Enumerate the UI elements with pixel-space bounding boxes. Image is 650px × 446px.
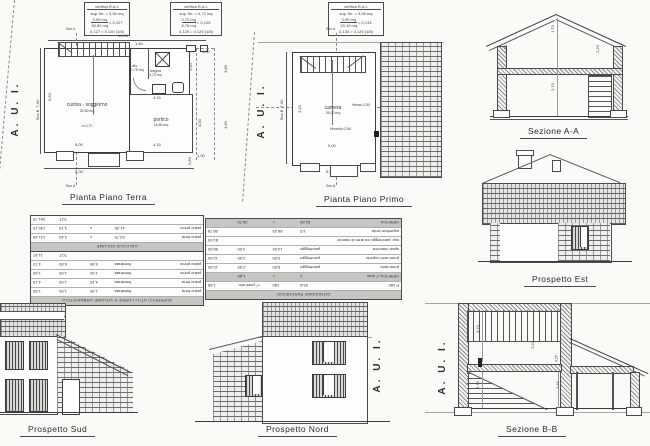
dim-ridge-aa: 1,70 <box>551 17 555 41</box>
title-prospetto-nord: Prospetto Nord <box>258 424 337 437</box>
table-cell: parcheggio <box>298 266 337 271</box>
dim-bagno: 2,50 <box>189 55 193 79</box>
rafter-zone <box>467 310 560 342</box>
wall-marker <box>374 131 379 137</box>
porch-step <box>56 151 74 161</box>
verifica-title: verifica R.A.I. <box>173 4 219 10</box>
verifica-sup: sup. fin. = 0,72 mq <box>173 11 219 16</box>
shower-symbol <box>155 52 170 67</box>
wall-footing <box>454 407 472 416</box>
portico-end-wall <box>630 372 640 412</box>
table-cell: 4,72 <box>31 263 57 268</box>
sez-a-marker-top: Sez.A <box>66 28 75 32</box>
porch-step <box>330 165 358 177</box>
dim-line <box>482 372 483 408</box>
verifica-check: 0,134 > 0,125 (1/8) <box>331 29 381 34</box>
window-pane <box>323 375 335 395</box>
aui-label-nord: A. U. I. <box>373 337 383 393</box>
table-cell: parcheggio <box>298 248 337 253</box>
dim-right-aa: 2,20 <box>596 37 600 61</box>
table-cell: 11,87 <box>31 254 57 259</box>
fraction-denominator: 29,10 mq <box>340 23 357 28</box>
camera-hmedia: Hmedia=2,56 <box>330 128 351 132</box>
drawing-sheet: verifica R.A.I. sup. fin. = 3,90 mq 3,90… <box>0 0 650 446</box>
room-label-cucina: cucina - soggiorno <box>44 103 130 108</box>
wall-footing <box>556 407 574 416</box>
roof-slope-left <box>486 14 556 47</box>
title-prospetto-sud: Prospetto Sud <box>20 424 95 437</box>
table-cell: 4,00 <box>236 248 271 253</box>
table-cell: VERIFICA <box>337 221 401 226</box>
table-row: piano primo41,30x3,15130,10 <box>31 225 203 234</box>
adjacent-building-hatch <box>380 42 442 178</box>
dim-corner-a: 1,00 <box>197 154 205 158</box>
dim-right-up: 3,80 <box>224 57 228 81</box>
table-row: VERIFICA n° auto2>1,88 <box>206 273 401 282</box>
table-row: VERIFICA81,00>28,76 <box>206 219 401 228</box>
title-sezione-bb: Sezione B-B <box>498 424 566 437</box>
dim-top-terra: 10,05 <box>118 34 128 38</box>
dim-line <box>286 52 287 164</box>
table-cell: 5,00 <box>271 257 299 262</box>
dim-line-center <box>557 18 558 116</box>
table-cell: 86,33 <box>271 230 299 235</box>
porch-step <box>88 153 120 167</box>
wall-footing <box>493 110 510 118</box>
table-cell: 2,50 <box>236 266 271 271</box>
roof-shingle-band <box>262 302 368 338</box>
sez-a-marker-bottom: Sez.A <box>326 185 335 189</box>
roof-fascia <box>0 311 64 320</box>
title-pianta-terra: Pianta Piano Terra <box>62 192 155 205</box>
wall-cucina <box>44 48 130 153</box>
table-cell: P 180 <box>337 284 401 289</box>
table-cell: VERIFICA n° auto <box>337 275 401 280</box>
table-cell: TOT <box>57 218 88 223</box>
table-cell: 2,45 <box>57 236 88 241</box>
verifica-check: 0,125 = 0,125 (1/8) <box>173 29 219 34</box>
table-cell: 41,30 <box>113 227 147 232</box>
chimney-cap <box>516 150 534 156</box>
aui-label-bb: A. U. I. <box>438 339 448 395</box>
table-cell: 1,00 <box>57 281 88 286</box>
window-shuttered <box>5 379 24 412</box>
table-cell: 28,76 <box>236 221 271 226</box>
table-cell: 81,00 <box>298 221 337 226</box>
dim-portico-top: 4,15 <box>153 96 161 100</box>
room-height-cucina: h=2,70 <box>44 125 130 129</box>
aui-label-primo: A. U. I. <box>257 83 267 139</box>
verifica-title: verifica R.A.I. <box>87 4 127 10</box>
dim-slab-bb: 0,25 <box>555 350 559 368</box>
roof-shingle-band <box>482 183 626 225</box>
table-cell: 1/3 <box>298 230 337 235</box>
table-cell: finestrata <box>113 281 147 286</box>
portico-post <box>612 372 614 410</box>
table-cell: sup. parcheggio ed aree di manovra <box>337 239 401 244</box>
table-cell: 1,50 <box>31 290 57 295</box>
table-cell: 12,50 <box>206 257 236 262</box>
dim-bottom-portico: 4,15 <box>153 143 161 147</box>
table-cell: 2,50 <box>236 257 271 262</box>
sez-b-marker: Sez.B <box>279 110 284 121</box>
table-cell: 2 <box>298 275 337 280</box>
sink-symbol <box>152 84 166 94</box>
table-cell: 3,15 <box>57 227 88 232</box>
table-banner: DOTAZIONE PARCHEGGI <box>206 291 401 299</box>
dim-corner-b: 0,80 <box>188 151 192 171</box>
section-wall-right <box>560 303 572 415</box>
table-superfici-volume: SUPERFICI UTILI LORDE E VOLUME URBANISTI… <box>30 215 204 306</box>
table-cell: superficie lorda <box>337 230 401 235</box>
dim-bottom-main: 5,00 <box>75 143 83 147</box>
table-cell: 28,78 <box>206 230 236 235</box>
table-cell: 0,80 <box>57 263 88 268</box>
fraction-denominator: 30,50 mq <box>91 23 108 28</box>
table-row: piano primofinestrata5,900,804,72 <box>31 261 203 270</box>
title-prospetto-est: Prospetto Est <box>524 274 596 287</box>
dim-low-bb: 2,70 <box>476 373 480 397</box>
table-cell: posto auto coperto <box>337 257 401 262</box>
dim-line-bottom <box>44 168 194 169</box>
sez-a-marker-top: Sez.A <box>326 28 335 32</box>
table-cell: 130,10 <box>31 227 57 232</box>
table-cell: 180 <box>271 284 299 289</box>
table-row: piano primofinestrata1,001,501,50 <box>31 270 203 279</box>
table-cell: piano terra <box>147 290 203 295</box>
room-area-cucina: 30,50 mq <box>44 110 130 114</box>
section-floor-slab <box>497 68 623 75</box>
table-cell: finestrata <box>113 263 147 268</box>
table-cell: piano primo <box>147 227 203 232</box>
ground-line-2 <box>490 119 628 120</box>
brick-pier <box>490 223 500 261</box>
ground-line <box>0 412 138 413</box>
aui-label-terra: A. U. I. <box>11 81 21 137</box>
table-cell: 5,00 <box>271 266 299 271</box>
sez-a-marker-bottom: Sez.A <box>66 185 75 189</box>
table-cell: piano primo <box>147 263 203 268</box>
porch-step <box>360 163 376 172</box>
table-row: TOT261,79 <box>31 216 203 225</box>
table-cell: 1,50 <box>31 272 57 277</box>
dim-line <box>40 48 41 154</box>
room-area-camera: 26,00 mq <box>292 112 374 116</box>
table-cell: 14,00 <box>271 248 299 253</box>
ground-line <box>478 261 632 262</box>
verifica-fraction: 0,72 mq5,76 mq = 0,125 <box>173 17 219 29</box>
table-cell: piano terra <box>147 236 203 241</box>
table-cell: finestrata <box>113 272 147 277</box>
site-boundary-line <box>242 32 255 202</box>
dim-up-bb: 3,70 <box>476 317 480 341</box>
roof-slope-right-inner <box>556 19 622 50</box>
table-cell: TOT <box>57 254 88 259</box>
table-cell: 4,15 <box>88 281 113 286</box>
wall-footing <box>610 110 627 118</box>
table-cell: posto auto <box>337 266 401 271</box>
table-cell: > <box>271 221 299 226</box>
window-shuttered <box>29 341 48 370</box>
table-row: piano terra53,75x2,45131,69 <box>31 234 203 243</box>
table-cell: piano terra <box>147 281 203 286</box>
verifica-title: verifica R.A.I. <box>331 4 381 10</box>
table-cell: 1,88 <box>236 275 271 280</box>
table-cell: 93,8 <box>298 284 337 289</box>
portico-post <box>576 372 578 410</box>
table-cell: 1,00 <box>88 290 113 295</box>
verifica-fraction: 3,90 mq29,10 mq = 0,134 <box>331 17 381 29</box>
roof-shingle-band <box>0 303 66 338</box>
dim-portico-right: 4,00 <box>198 111 202 135</box>
table-row: posto autoparcheggio5,002,5012,50 <box>206 264 401 273</box>
dim-line <box>482 312 483 362</box>
fraction-result: = 0,125 <box>197 20 210 25</box>
dim-inner-primo: 3,20 <box>298 97 302 121</box>
table-row: sup. parcheggio ed aree di manovra81,00 <box>206 237 401 246</box>
gable-vent <box>552 160 561 172</box>
room-area-bagno: 3,75 mq <box>149 74 162 78</box>
table-cell: 5,90 <box>88 263 113 268</box>
dim-mid-bb: 2,22 <box>531 333 535 357</box>
gable-slope-left <box>482 154 551 184</box>
table-cell: spazi manovra <box>337 248 401 253</box>
fraction-denominator: 5,76 mq <box>182 23 196 28</box>
fraction-result: = 0,134 <box>358 20 371 25</box>
ground-line <box>490 116 628 117</box>
table-cell: finestrata <box>113 290 147 295</box>
fraction-result: = 0,127 <box>109 20 122 25</box>
table-cell: 1,88 <box>206 284 236 289</box>
dim-left-primo: Sez.B 7,00 <box>280 90 284 130</box>
dim-stairs: 1,50 <box>135 42 143 46</box>
dim-floor-aa: 2,70 <box>551 75 555 99</box>
dim-left-aa: 1,20 <box>504 37 508 61</box>
section-stairs <box>588 75 612 118</box>
window-pane <box>323 342 335 362</box>
table-cell: x <box>88 236 113 241</box>
table-parcheggi: DOTAZIONE PARCHEGGIP 18093,8180n° posti … <box>205 218 402 300</box>
verifica-rai-box-3: verifica R.A.I. sup. fin. = 3,90 mq 3,90… <box>328 2 384 36</box>
dim-right-low: 4,60 <box>224 113 228 137</box>
table-row: piano terrafinestrata1,001,501,50 <box>31 288 203 297</box>
table-cell: 1,50 <box>57 272 88 277</box>
section-wall-right <box>613 46 623 118</box>
table-row: posto auto copertoparcheggio5,002,5012,5… <box>206 255 401 264</box>
title-sezione-aa: Sezione A-A <box>520 126 587 139</box>
ground-line <box>195 421 390 422</box>
portico-dashed-edge <box>196 48 197 160</box>
camera-hmax: Hmax=2,50 <box>352 104 370 108</box>
verifica-fraction: 3,90 mq30,50 mq = 0,127 <box>87 17 127 29</box>
portico-beam <box>570 366 634 374</box>
dim-bottom-out: 5,00 <box>75 170 83 174</box>
window-pane <box>580 227 587 247</box>
dim-inner-left: 6,50 <box>48 85 52 109</box>
verifica-rai-box-2: verifica R.A.I. sup. fin. = 0,72 mq 0,72… <box>170 2 222 36</box>
dim-width-primo: 5,00 <box>328 144 336 148</box>
ground-slab-line <box>455 408 640 409</box>
roof-slope-right <box>556 14 626 47</box>
table-cell: 1,00 <box>88 272 113 277</box>
table-cell: x <box>88 227 113 232</box>
window-shuttered <box>5 341 24 370</box>
table-cell: 1,50 <box>57 290 88 295</box>
table-row: superficie lorda1/386,3328,78 <box>206 228 401 237</box>
table-row: P 18093,8180n° posti min.1,88 <box>206 282 401 291</box>
title-pianta-primo: Pianta Piano Primo <box>316 194 412 207</box>
table-cell: 261,79 <box>31 218 57 223</box>
table-cell: 12,50 <box>206 266 236 271</box>
verifica-rai-box-1: verifica R.A.I. sup. fin. = 3,90 mq 3,90… <box>84 2 130 36</box>
table-cell: 131,69 <box>31 236 57 241</box>
door-sud <box>62 379 80 415</box>
room-area-portico: 16,60 mq <box>130 124 192 128</box>
wc-symbol <box>172 82 184 93</box>
wall-footing <box>626 407 642 416</box>
table-cell: n° posti min. <box>236 284 271 289</box>
room-area-dis: 1,75 mq <box>131 69 144 73</box>
table-row: piano terrafinestrata4,151,004,15 <box>31 279 203 288</box>
table-cell: 81,00 <box>206 239 236 244</box>
porch-step <box>126 151 144 161</box>
table-row: TOT11,87 <box>31 252 203 261</box>
dim-top-right: 1,00 <box>202 50 210 54</box>
dim-portico-bb: 2,45 <box>556 373 560 397</box>
window-shuttered <box>29 379 48 412</box>
porch-step <box>300 163 320 172</box>
radiator-symbol <box>186 45 196 52</box>
table-cell: piano primo <box>147 272 203 277</box>
table-cell: 56,00 <box>206 248 236 253</box>
table-cell: 4,15 <box>31 281 57 286</box>
portico-dashed-edge <box>214 48 215 160</box>
table-cell: 53,75 <box>113 236 147 241</box>
dim-line-top <box>48 40 206 41</box>
table-banner: CALCOLO VOLUME <box>31 243 203 252</box>
window-pane <box>252 376 260 394</box>
table-cell: > <box>271 275 299 280</box>
table-row: spazi manovraparcheggio14,004,0056,00 <box>206 246 401 255</box>
table-cell: parcheggio <box>298 257 337 262</box>
